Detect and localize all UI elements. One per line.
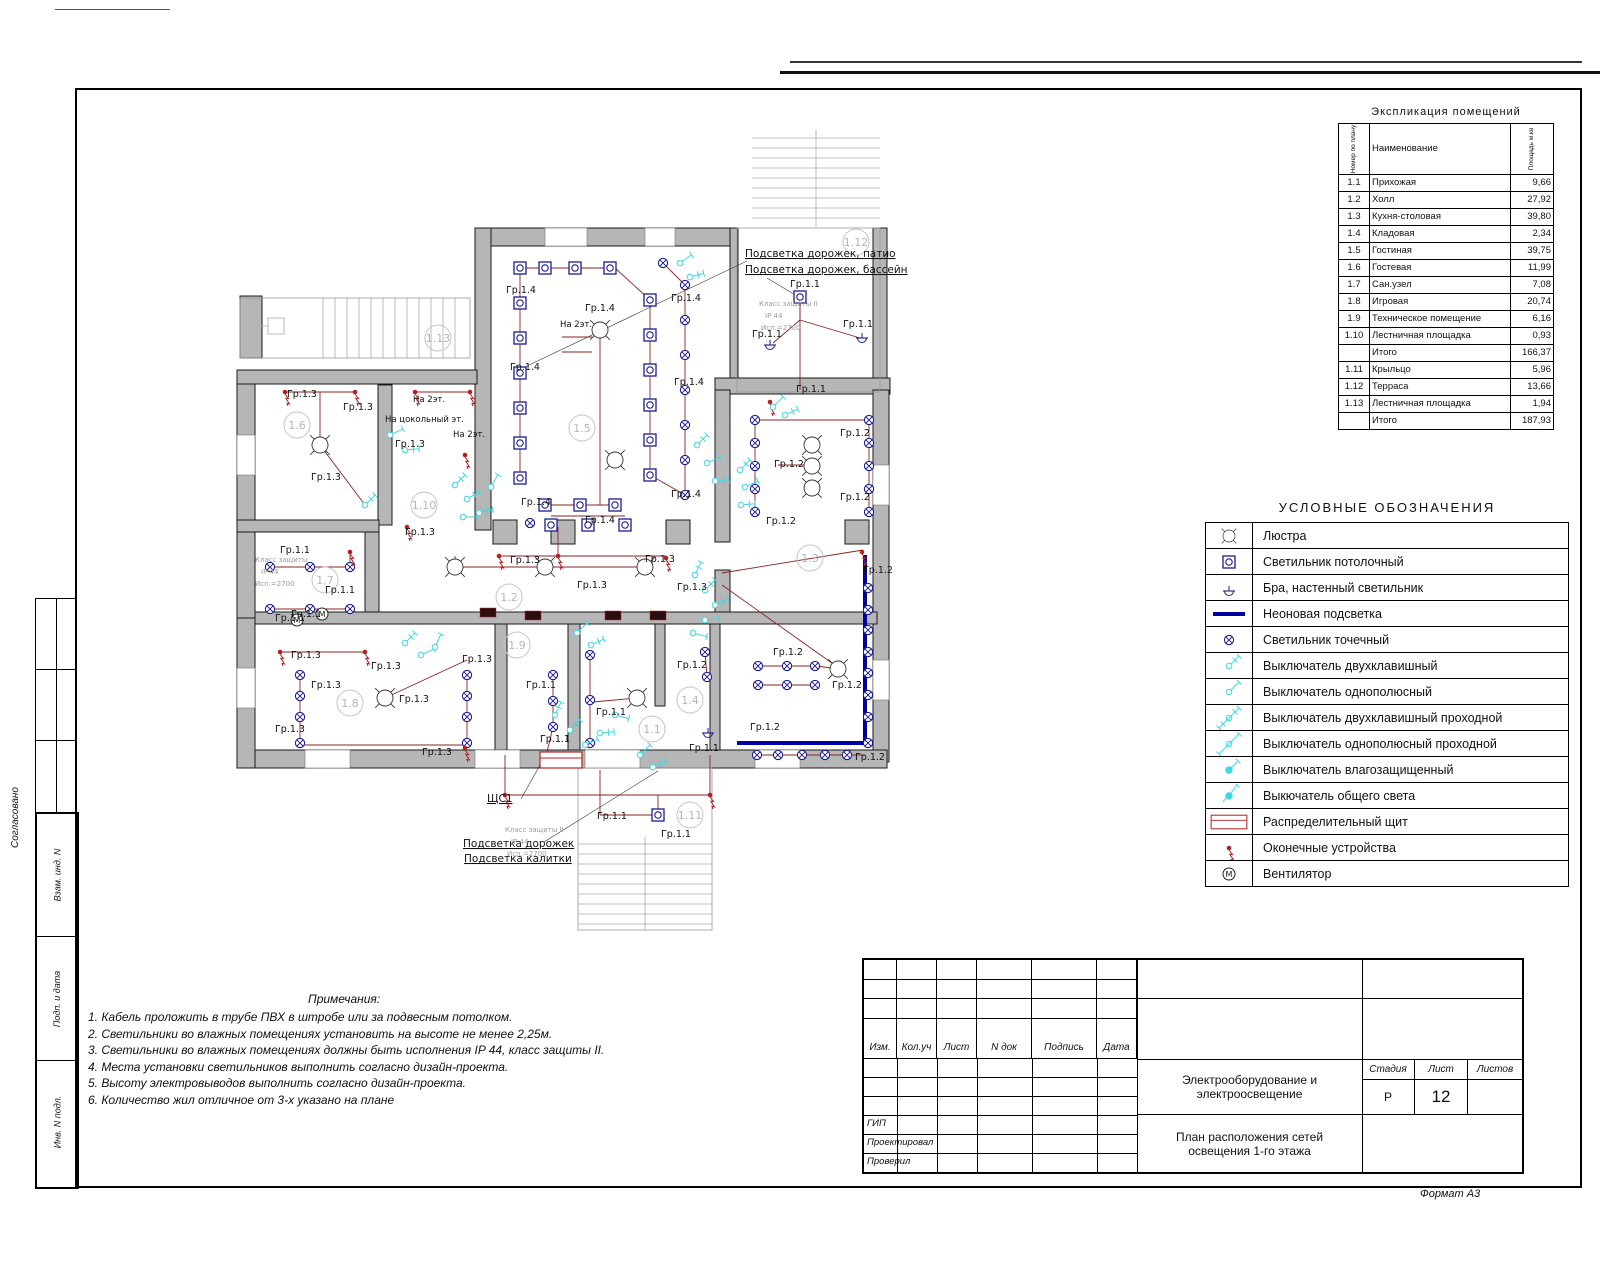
stamp-line [864,1134,1137,1135]
room-area: 6,16 [1511,311,1554,328]
sw2-legend-icon [1208,654,1250,678]
explication-row: 1.9 Техническое помещение 6,16 [1339,311,1554,328]
plan-shape [818,435,822,439]
room-name: Сан.узел [1370,277,1511,294]
plan-shape [490,475,500,485]
plan-label: Гр.1.2 [774,459,804,470]
legend-symbol [1206,575,1253,600]
notes-block: Примечания: 1. Кабель проложить в трубе … [88,992,698,1107]
plan-label: Гр.1.1 [752,329,782,340]
legend-symbol [1206,549,1253,574]
chand-icon [627,688,647,708]
legend-row: Люстра [1205,522,1569,549]
plan-label: На 2эт. [453,430,485,440]
sheet-title: План расположения сетей освещения 1-го э… [1137,1115,1362,1172]
explication-row: Итого 166,37 [1339,345,1554,362]
room-number [1339,413,1370,430]
stair-landing [268,318,284,334]
plan-shape [391,704,395,708]
plan-label: Гр.1.2 [855,752,885,763]
spot-icon [810,661,819,670]
spot-icon [782,680,791,689]
room-name: Итого [1370,413,1511,430]
plan-shape [695,271,702,278]
plan-shape [802,435,806,439]
chand-icon [375,688,395,708]
chand-icon [802,456,822,476]
legend-label: Бра, настенный светильник [1253,581,1568,595]
plan-shape [802,451,806,455]
plan-shape [644,399,656,411]
faded-note-label: Исп.=2700 [507,850,547,858]
plan-shape [1225,591,1234,596]
term-dot [353,390,358,395]
swg-legend-icon [1208,784,1250,808]
plan-shape [644,364,656,376]
plan-label: Гр.1.3 [462,654,492,665]
spot-icon [548,670,557,679]
spot-icon [680,350,689,359]
ceil-icon [619,519,631,531]
plan-shape [621,450,625,454]
ceil-icon [644,399,656,411]
note-line: 1. Кабель проложить в трубе ПВХ в штробе… [88,1010,698,1024]
spot-icon [864,438,873,447]
legend-symbol [1206,809,1253,834]
plan-shape [830,661,846,677]
ceil-icon [652,809,664,821]
plan-shape [804,458,820,474]
plan-shape [795,406,801,412]
legend-symbol [1206,653,1253,678]
chand-icon [310,435,330,455]
plan-label: Гр.1.1 [661,829,691,840]
plan-shape [652,809,664,821]
spot-icon [864,461,873,470]
col-name-label: Наименование [1372,143,1438,154]
room-name: Прихожая [1370,175,1511,192]
plan-shape [540,752,582,768]
plan-shape [1223,798,1226,802]
legend-row: Оконечные устройства [1205,834,1569,861]
plan-shape [459,513,467,521]
spot-icon [797,750,806,759]
sw1p-icon [1217,732,1242,756]
plan-shape [393,426,403,436]
col-num-label: Номер по плану [1346,125,1362,174]
ceil-icon [644,294,656,306]
sheets-label: Листов [1468,1059,1522,1080]
sw2p-icon [1217,706,1242,730]
legend-symbol [1206,601,1253,626]
sw1-icon [428,631,448,651]
room-number: 1.4 [1339,226,1370,243]
wall [240,296,262,358]
plan-label: Гр.1.1 [843,319,873,330]
plan-shape [514,402,526,414]
note-line: 6. Количество жил отличное от 3-х указан… [88,1093,698,1107]
faded-note-label: IP 44 [511,838,529,846]
term-dot [768,400,773,405]
plan-shape [844,675,848,679]
explication-row: 1.4 Кладовая 2,34 [1339,226,1554,243]
chand-icon [828,659,848,679]
window [545,228,587,246]
plan-shape [447,559,463,575]
chand-icon [590,320,610,340]
legend-label: Светильник потолочный [1253,555,1568,569]
wall [237,520,379,532]
plan-shape [606,320,610,324]
spot-icon [295,691,304,700]
spot-icon [750,484,759,493]
board-icon [540,752,582,768]
term-dot [556,554,561,559]
explication-table: Номер по плану Наименование Площадь м.кв… [1338,123,1554,430]
room-number-text: 1.6 [288,419,306,432]
plan-label: ЩС1 [487,793,513,805]
window [873,660,889,700]
ceil-icon [644,329,656,341]
faded-note-label: IP 44 [261,568,279,576]
room-number: 1.9 [1339,311,1370,328]
plan-shape [312,437,328,453]
plan-shape [569,262,581,274]
plan-shape [1226,792,1232,798]
plan-shape [689,629,697,637]
plan-shape [590,336,594,340]
explication-title: Экспликация помещений [1338,106,1554,118]
plan-shape [310,435,314,439]
plan-label: Гр.1.1 [796,384,826,395]
notes-title: Примечания: [308,992,698,1006]
spot-icon [750,507,759,516]
plan-shape [703,459,710,466]
plan-shape [770,404,776,410]
explication-row: 1.2 Холл 27,92 [1339,192,1554,209]
col-area-label: Площадь м.кв [1524,128,1540,171]
plan-shape [445,557,449,561]
explication-row: 1.6 Гостевая 11,99 [1339,260,1554,277]
podp-label: Подп. и дата [52,970,62,1026]
stage-value: Р [1362,1080,1415,1115]
legend-symbol [1206,783,1253,808]
legend-label: Вентилятор [1253,867,1568,881]
sheet-label: Лист [1415,1059,1468,1080]
spot-icon [842,750,851,759]
plan-shape [644,469,656,481]
swg-icon [1223,784,1240,802]
wall [493,520,517,544]
plan-label: Гр.1.3 [399,694,429,705]
legend-row: M Вентилятор [1205,860,1569,887]
plan-shape [587,641,594,648]
floor-plan-svg: MM1.11.21.31.41.51.61.71.81.91.101.111.1… [225,115,915,950]
plan-shape [818,478,822,482]
stamp-line [977,1059,978,1172]
plan-shape [555,704,561,710]
sconce-legend-icon [1208,576,1250,600]
plan-shape [464,496,471,503]
spot-icon [345,604,354,613]
plan-shape [362,502,368,508]
plan-label: Гр.1.3 [677,582,707,593]
window [305,750,350,768]
note-line: 4. Места установки светильников выполнит… [88,1060,698,1074]
ceil-icon [514,437,526,449]
ceil-icon [514,472,526,484]
plan-shape [741,483,748,490]
plan-shape [1211,815,1247,829]
strip-cell-podp: Подп. и дата [37,937,77,1061]
plan-shape [1231,761,1238,768]
ceil-legend-icon [1208,550,1250,574]
plan-label: Гр.1.4 [674,377,704,388]
legend-title: УСЛОВНЫЕ ОБОЗНАЧЕНИЯ [1205,500,1569,515]
ceil-icon [514,262,526,274]
explication-row: 1.1 Прихожая 9,66 [1339,175,1554,192]
chand-legend-icon [1208,524,1250,548]
room-number-text: 1.1 [643,723,661,736]
spot-icon [773,750,782,759]
plan-label: Гр.1.2 [863,565,893,576]
plan-label: Гр.1.4 [671,293,701,304]
plan-shape [514,297,526,309]
door-threshold [525,611,541,620]
plan-shape [802,472,806,476]
room-number: 1.3 [1339,209,1370,226]
room-area: 11,99 [1511,260,1554,277]
plan-shape [802,478,806,482]
plan-shape [514,437,526,449]
plan-shape [627,688,631,692]
stamp-line [864,998,1137,999]
legend-label: Светильник точечный [1253,633,1568,647]
plan-label: Гр.1.2 [766,516,796,527]
spot-icon [753,680,762,689]
plan-shape [1219,708,1239,728]
spot-icon [462,712,471,721]
plan-shape [558,699,564,705]
spot-icon [863,690,872,699]
plan-shape [691,571,698,578]
swv-legend-icon [1208,758,1250,782]
plan-shape [606,336,610,340]
note-line: 3. Светильники во влажных помещениях дол… [88,1043,698,1057]
spot-icon [750,415,759,424]
term-dot [463,746,468,751]
plan-shape [686,273,694,281]
plan-shape [402,640,408,646]
neon-legend-icon [1208,602,1250,626]
wall [485,228,733,246]
sconce-icon [1223,586,1235,596]
plan-shape [844,659,848,663]
plan-shape [818,456,822,460]
sw1-icon [770,395,785,410]
plan-shape [445,573,449,577]
plan-label: Гр.1.4 [585,303,615,314]
spot-icon [750,461,759,470]
explication-row: 1.7 Сан.узел 7,08 [1339,277,1554,294]
plan-shape [755,478,761,484]
plan-shape [605,466,609,470]
wall [666,520,690,544]
sconce-icon [856,333,868,343]
room-area: 187,93 [1511,413,1554,430]
term-dot [348,550,353,555]
strip-cell-inv: Инв. N подл. [37,1061,77,1183]
sw2-icon [781,402,801,422]
room-number-text: 1.10 [412,499,437,512]
legend-block: УСЛОВНЫЕ ОБОЗНАЧЕНИЯ Люстра Светильник п… [1205,500,1569,887]
term-bolt [558,558,563,570]
plan-shape [629,690,645,706]
room-name: Лестничная площадка [1370,396,1511,413]
plan-label: Гр.1.1 [596,707,626,718]
plan-shape [417,651,424,658]
room-number: 1.11 [1339,362,1370,379]
scan-artifact-line [790,61,1582,63]
room-area: 39,80 [1511,209,1554,226]
plan-label: Гр.1.1 [526,680,556,691]
soglasovano-label: Согласовано [10,787,21,848]
room-number-text: 1.3 [801,552,819,565]
plan-shape [637,752,643,758]
plan-label: Гр.1.4 [521,497,551,508]
wall [873,390,889,762]
sw2-icon [1226,654,1241,669]
stamp-line [864,1018,1137,1019]
spot-icon [295,738,304,747]
col-num-header: Номер по плану [1339,124,1370,175]
term-dot [860,550,865,555]
stamp-line [1137,998,1522,999]
legend-row: Бра, настенный светильник [1205,574,1569,601]
col-name-header: Наименование [1370,124,1511,175]
plan-label: Гр.1.2 [773,647,803,658]
spot-icon [863,647,872,656]
sw1p-legend-icon [1208,732,1250,756]
room-name: Гостиная [1370,243,1511,260]
legend-label: Неоновая подсветка [1253,607,1568,621]
wall [715,390,730,542]
room-number: 1.10 [1339,328,1370,345]
chand-icon [802,478,822,498]
plan-shape [1219,734,1239,754]
plan-shape [625,715,632,722]
drawing-sheet: Согласовано Взам. инд. N Подп. и дата Ин… [0,0,1600,1280]
legend-symbol [1206,835,1253,860]
porch-outline [240,298,470,358]
plan-label: Гр.1.1 [540,734,570,745]
note-line: 5. Высоту электровыводов выполнить согла… [88,1076,698,1090]
plan-shape [635,573,639,577]
legend-row: Выключатель влагозащищенный [1205,756,1569,783]
room-area: 13,66 [1511,379,1554,396]
room-name: Лестничная площадка [1370,328,1511,345]
legend-symbol [1206,705,1253,730]
plan-label: Гр.1.3 [371,661,401,672]
ceil-icon [574,499,586,511]
plan-shape [696,630,707,641]
ceil-icon [569,262,581,274]
spot-icon [658,258,667,267]
spot-icon [295,712,304,721]
room-number: 1.5 [1339,243,1370,260]
plan-shape [781,411,788,418]
plan-shape [1222,540,1225,543]
term-bolt [1229,850,1234,860]
room-number-text: 1.11 [678,809,703,822]
spot-icon [585,695,594,704]
wall [378,385,392,525]
fan-legend-icon: M [1208,862,1250,886]
plan-shape [551,711,558,718]
plan-shape [828,675,832,679]
stage-label: Стадия [1362,1059,1415,1080]
term-dot [363,650,368,655]
room-number-text: 1.9 [508,639,526,652]
plan-shape [433,634,443,644]
plan-shape [644,294,656,306]
window [873,465,889,505]
plan-label: Гр.1.4 [671,489,701,500]
plan-shape [310,451,314,455]
faded-note-label: Класс защиты II [505,826,564,834]
term-dot [497,554,502,559]
term-dot [278,650,283,655]
room-number-text: 1.4 [681,694,699,707]
window [475,750,520,768]
plan-label: Гр.1.3 [343,402,373,413]
legend-row: Светильник точечный [1205,626,1569,653]
spot-icon [863,625,872,634]
room-area: 2,34 [1511,226,1554,243]
spot-icon [863,583,872,592]
room-area: 27,92 [1511,192,1554,209]
ceil-icon [545,519,557,531]
plan-shape [551,573,555,577]
door-threshold [480,608,496,617]
left-strip-lower-cells: Взам. инд. N Подп. и дата Инв. N подл. [35,812,79,1189]
spot-icon [864,507,873,516]
room-area: 7,08 [1511,277,1554,294]
spot-icon [680,455,689,464]
faded-note-label: Класс защиты [255,556,307,564]
door-threshold [650,611,666,620]
wall [237,370,477,384]
plan-shape [539,262,551,274]
term-dot [708,793,713,798]
plan-shape [651,573,655,577]
term-icon [463,453,470,469]
sw2-icon [587,632,607,652]
plan-label: Гр.1.2 [840,492,870,503]
role-proektiroval: Проектировал [867,1137,933,1148]
legend-row: Светильник потолочный [1205,548,1569,575]
faded-note-label: Исп.=2700 [255,580,295,588]
room-number: 1.13 [1339,396,1370,413]
plan-label: Гр.1.1 [689,743,719,754]
plan-shape [607,452,623,468]
legend-row: Выключатель двухклавишный проходной [1205,704,1569,731]
sw2-icon [362,493,377,508]
plan-shape [682,253,691,262]
plan-shape [766,345,775,350]
legend-row: Выкючатель общего света [1205,782,1569,809]
term-icon [1227,845,1234,859]
